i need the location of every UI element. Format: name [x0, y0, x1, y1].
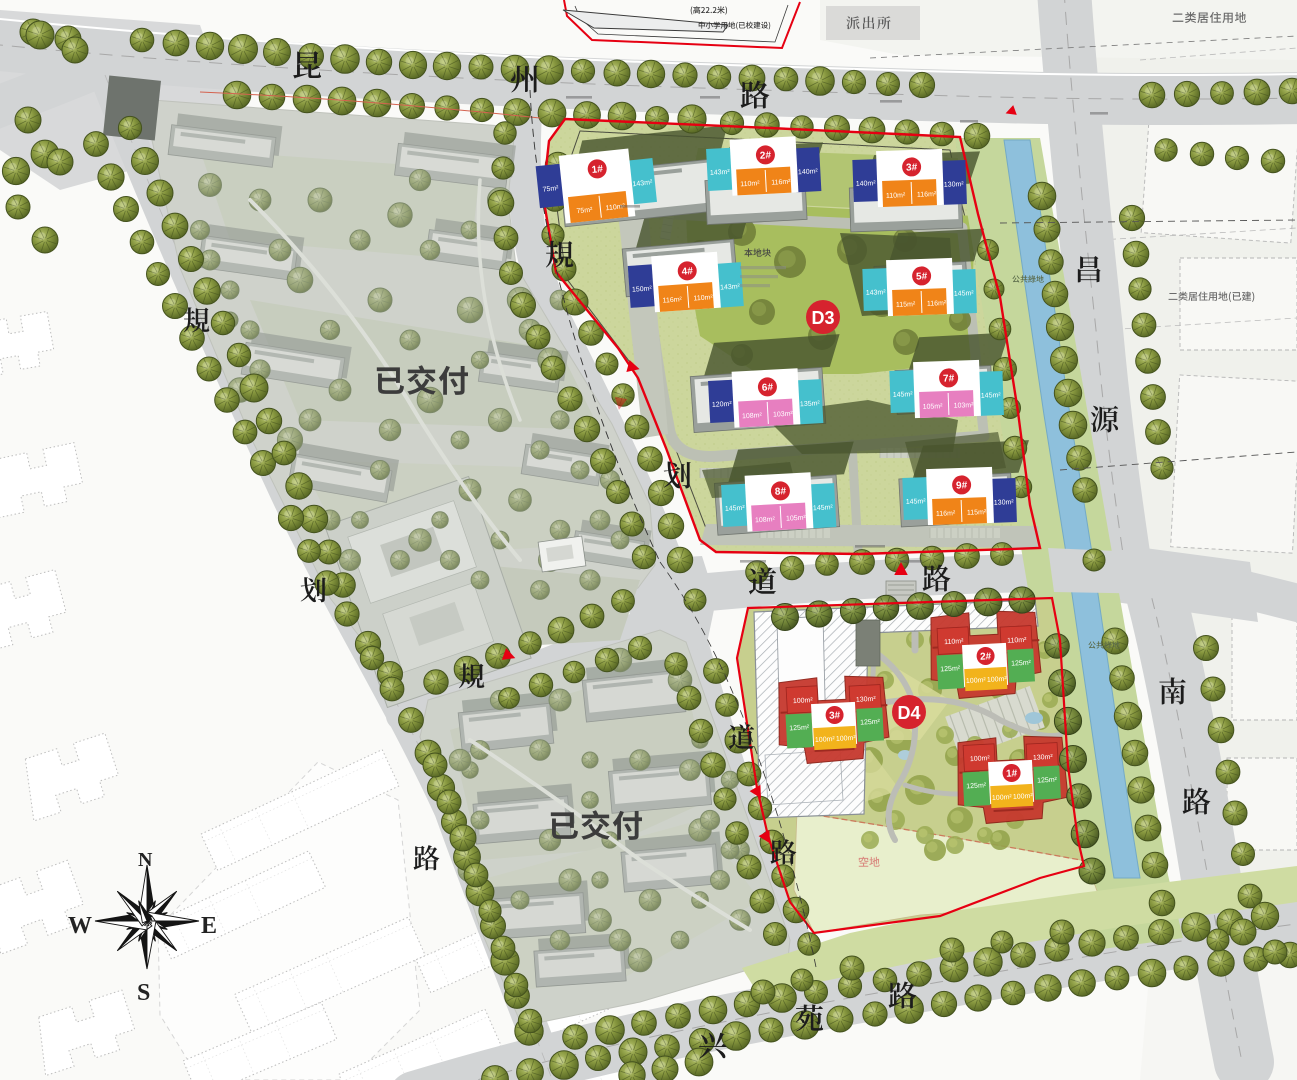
- svg-text:1#: 1#: [1006, 768, 1018, 780]
- svg-text:150m²: 150m²: [632, 285, 653, 293]
- svg-text:115m²: 115m²: [967, 509, 987, 517]
- svg-text:110m²: 110m²: [740, 180, 760, 188]
- svg-text:130m²: 130m²: [1033, 754, 1054, 762]
- svg-text:125m²: 125m²: [940, 665, 961, 673]
- svg-text:125m²: 125m²: [860, 719, 881, 727]
- svg-text:D3: D3: [811, 308, 834, 328]
- svg-text:3#: 3#: [829, 710, 841, 722]
- svg-text:7#: 7#: [943, 373, 955, 384]
- svg-text:103m²: 103m²: [773, 411, 794, 419]
- svg-text:130m²: 130m²: [994, 499, 1015, 507]
- svg-text:116m²: 116m²: [662, 296, 682, 304]
- svg-text:110m²: 110m²: [1007, 637, 1027, 645]
- svg-text:145m²: 145m²: [981, 392, 1002, 400]
- svg-text:145m²: 145m²: [813, 504, 834, 512]
- svg-text:E: E: [201, 913, 217, 939]
- svg-text:5#: 5#: [916, 271, 928, 282]
- svg-text:2#: 2#: [760, 150, 772, 162]
- svg-text:W: W: [68, 913, 92, 939]
- svg-text:N: N: [138, 849, 153, 871]
- svg-text:103m²: 103m²: [954, 402, 975, 410]
- svg-text:130m²: 130m²: [944, 181, 965, 189]
- svg-text:143m²: 143m²: [720, 283, 741, 291]
- svg-text:145m²: 145m²: [725, 505, 746, 513]
- svg-text:125m²: 125m²: [1037, 777, 1058, 785]
- svg-text:145m²: 145m²: [954, 290, 975, 298]
- svg-text:105m²: 105m²: [786, 515, 807, 523]
- svg-text:116m²: 116m²: [917, 191, 937, 199]
- svg-text:1#: 1#: [591, 164, 604, 176]
- svg-text:S: S: [137, 980, 150, 1006]
- svg-text:9#: 9#: [956, 480, 968, 491]
- svg-text:125m²: 125m²: [966, 782, 987, 790]
- svg-text:120m²: 120m²: [712, 401, 733, 409]
- svg-text:4#: 4#: [681, 266, 693, 278]
- svg-text:100m²: 100m²: [793, 697, 814, 705]
- svg-text:100m²: 100m²: [987, 676, 1008, 684]
- svg-text:108m²: 108m²: [755, 516, 776, 524]
- svg-text:140m²: 140m²: [856, 180, 877, 188]
- svg-text:110m²: 110m²: [693, 294, 713, 302]
- svg-text:140m²: 140m²: [798, 168, 819, 176]
- svg-text:110m²: 110m²: [944, 638, 964, 646]
- svg-text:6#: 6#: [762, 382, 774, 394]
- svg-text:105m²: 105m²: [923, 403, 944, 411]
- svg-text:108m²: 108m²: [742, 412, 763, 420]
- svg-text:110m²: 110m²: [886, 192, 906, 200]
- svg-text:135m²: 135m²: [800, 400, 821, 408]
- svg-text:125m²: 125m²: [789, 724, 810, 732]
- svg-text:116m²: 116m²: [771, 179, 791, 187]
- svg-text:100m²: 100m²: [970, 755, 991, 763]
- svg-text:130m²: 130m²: [856, 696, 877, 704]
- svg-text:2#: 2#: [980, 651, 992, 663]
- svg-text:143m²: 143m²: [710, 169, 731, 177]
- svg-text:100m²: 100m²: [815, 736, 836, 744]
- svg-text:3#: 3#: [906, 162, 918, 173]
- svg-text:D4: D4: [897, 703, 920, 723]
- svg-text:100m²: 100m²: [836, 735, 857, 743]
- svg-text:143m²: 143m²: [866, 289, 887, 297]
- svg-text:100m²: 100m²: [992, 794, 1013, 802]
- svg-text:100m²: 100m²: [966, 677, 987, 685]
- svg-text:115m²: 115m²: [896, 301, 916, 309]
- svg-text:116m²: 116m²: [927, 300, 947, 308]
- svg-text:100m²: 100m²: [1013, 793, 1034, 801]
- svg-text:145m²: 145m²: [906, 498, 927, 506]
- svg-text:8#: 8#: [775, 486, 787, 498]
- svg-text:145m²: 145m²: [893, 391, 914, 399]
- svg-text:125m²: 125m²: [1011, 660, 1032, 668]
- svg-text:116m²: 116m²: [936, 510, 956, 518]
